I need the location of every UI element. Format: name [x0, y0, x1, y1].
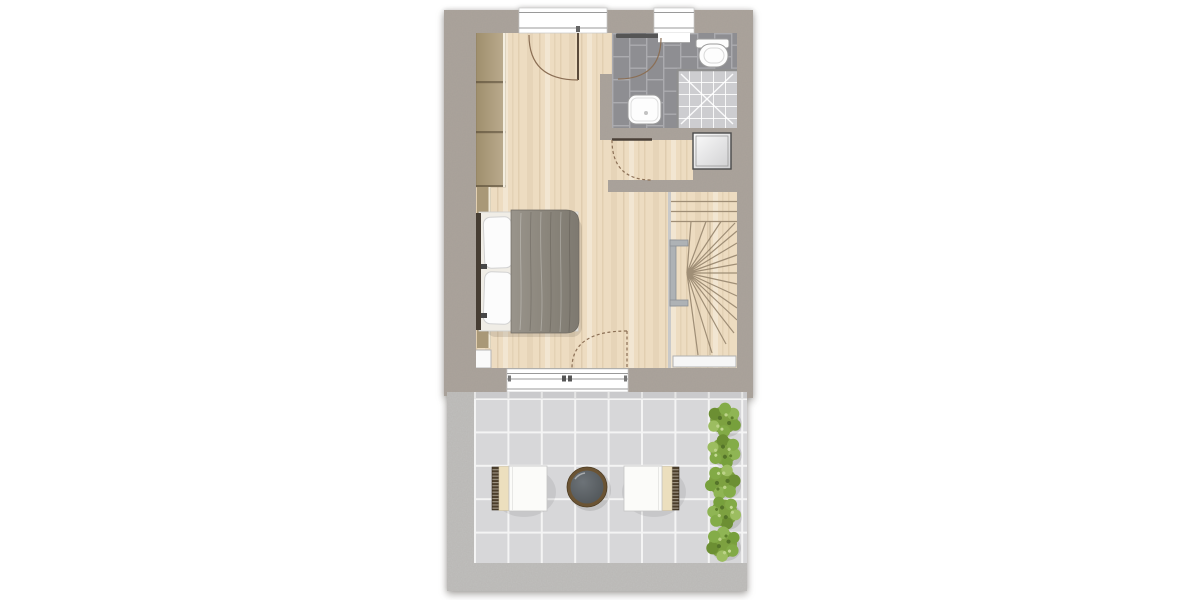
- upper-unit: [444, 8, 753, 398]
- terrace-chair-right: [624, 466, 679, 511]
- bathroom-window: [654, 8, 694, 43]
- winder-staircase: [668, 192, 737, 368]
- bathroom-door-leaf: [616, 34, 662, 39]
- french-window-top: [519, 8, 607, 33]
- terrace: [447, 392, 748, 591]
- shower: [677, 70, 737, 128]
- floor-plan-canvas: [0, 0, 1200, 600]
- washbasin: [628, 95, 661, 124]
- terrace-chair-left: [492, 466, 547, 511]
- bathroom: [612, 33, 737, 128]
- terrace-sliding-door: [507, 369, 628, 392]
- stair-landing: [673, 356, 736, 367]
- toilet: [696, 39, 729, 67]
- washing-machine: [693, 133, 731, 169]
- double-bed: [476, 210, 582, 337]
- floor-plan-drawing: [0, 0, 1200, 600]
- headboard: [476, 213, 481, 330]
- round-table: [567, 467, 607, 507]
